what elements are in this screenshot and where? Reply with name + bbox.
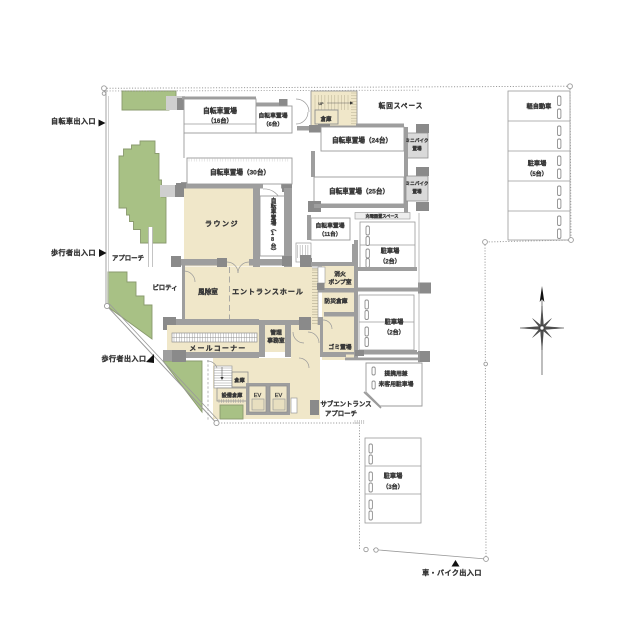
svg-text:自転車置場: 自転車置場 (316, 222, 345, 230)
svg-text:来客用駐車場: 来客用駐車場 (378, 380, 414, 388)
svg-text:軽自動車: 軽自動車 (527, 103, 553, 111)
svg-text:（6台）: （6台） (263, 120, 283, 128)
svg-text:置場: 置場 (412, 188, 422, 195)
svg-text:管理: 管理 (270, 329, 282, 337)
svg-text:防災倉庫: 防災倉庫 (324, 297, 347, 305)
svg-text:置場: 置場 (412, 145, 422, 152)
svg-text:エントランスホール: エントランスホール (232, 288, 304, 296)
svg-text:（16台）: （16台） (207, 117, 232, 125)
svg-text:自転車置場: 自転車置場 (259, 112, 288, 120)
svg-text:EV: EV (275, 393, 283, 399)
svg-text:（2台）: （2台） (379, 258, 400, 266)
svg-text:自転車置場（24台）: 自転車置場（24台） (332, 136, 392, 145)
svg-text:メールコーナー: メールコーナー (189, 345, 246, 353)
svg-text:アプローチ: アプローチ (325, 409, 357, 418)
svg-text:風除室: 風除室 (198, 287, 218, 296)
svg-text:（5台）: （5台） (526, 170, 547, 178)
svg-text:自転車置場（30台）: 自転車置場（30台） (210, 168, 270, 177)
svg-text:歩行者出入口: 歩行者出入口 (102, 354, 147, 363)
svg-text:ピロティ: ピロティ (152, 283, 177, 292)
svg-text:倉庫: 倉庫 (320, 115, 332, 123)
svg-text:UP: UP (319, 102, 325, 106)
svg-text:自転車置場: 自転車置場 (203, 106, 237, 115)
svg-text:（3台）: （3台） (382, 483, 403, 491)
svg-text:（11台）: （11台） (319, 230, 342, 238)
svg-text:充電器置スペース: 充電器置スペース (366, 213, 399, 220)
svg-text:設備倉庫: 設備倉庫 (222, 391, 244, 399)
svg-text:ミニバイク: ミニバイク (406, 180, 429, 187)
svg-text:サブエントランス: サブエントランス (321, 399, 372, 408)
svg-text:車・バイク出入口: 車・バイク出入口 (422, 568, 482, 577)
svg-text:ミニバイク: ミニバイク (406, 137, 429, 144)
svg-text:駐車場: 駐車場 (385, 318, 404, 326)
svg-text:駐車場: 駐車場 (528, 160, 547, 168)
svg-text:歩行者出入口: 歩行者出入口 (51, 248, 96, 257)
svg-text:転回スペース: 転回スペース (379, 101, 424, 110)
svg-text:（2台）: （2台） (383, 329, 404, 337)
svg-text:アプローチ: アプローチ (112, 253, 144, 262)
svg-text:ゴミ置場: ゴミ置場 (328, 343, 351, 351)
svg-text:駐車場: 駐車場 (384, 472, 403, 480)
svg-text:自転車置場（25台）: 自転車置場（25台） (329, 187, 389, 196)
svg-text:消火: 消火 (334, 270, 346, 278)
svg-text:EV: EV (254, 393, 262, 399)
svg-text:駐車場: 駐車場 (381, 247, 400, 255)
svg-text:提携用兼: 提携用兼 (384, 370, 407, 378)
svg-text:事務室: 事務室 (267, 337, 285, 345)
svg-text:倉庫: 倉庫 (233, 376, 245, 384)
svg-text:ラウンジ: ラウンジ (205, 219, 239, 228)
svg-text:ポンプ室: ポンプ室 (328, 278, 351, 286)
svg-text:自転車出入口: 自転車出入口 (51, 117, 96, 126)
